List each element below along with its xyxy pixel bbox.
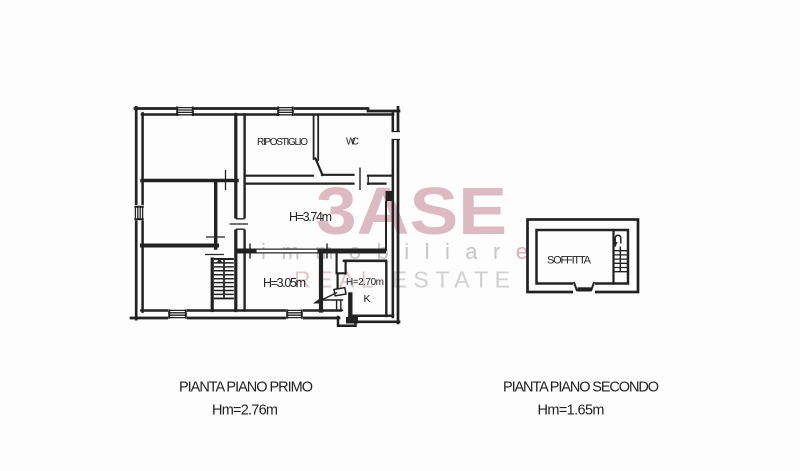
svg-text:PIANTA PIANO SECONDO: PIANTA PIANO SECONDO [503,380,659,396]
svg-text:H=3.74m: H=3.74m [289,210,332,224]
svg-text:WC: WC [346,137,359,148]
svg-text:H=2.70m: H=2.70m [346,277,384,288]
svg-text:3ASE: 3ASE [316,174,507,249]
svg-text:K: K [364,293,371,305]
svg-text:SOFFITTA: SOFFITTA [547,255,592,267]
svg-text:Hm=2.76m: Hm=2.76m [212,403,278,419]
svg-text:REAL ESTATE: REAL ESTATE [294,267,510,293]
svg-text:Hm=1.65m: Hm=1.65m [538,403,605,419]
svg-text:RIPOSTIGLIO: RIPOSTIGLIO [257,137,308,148]
svg-text:H=3.05m: H=3.05m [263,276,306,290]
svg-text:PIANTA PIANO PRIMO: PIANTA PIANO PRIMO [179,380,313,396]
